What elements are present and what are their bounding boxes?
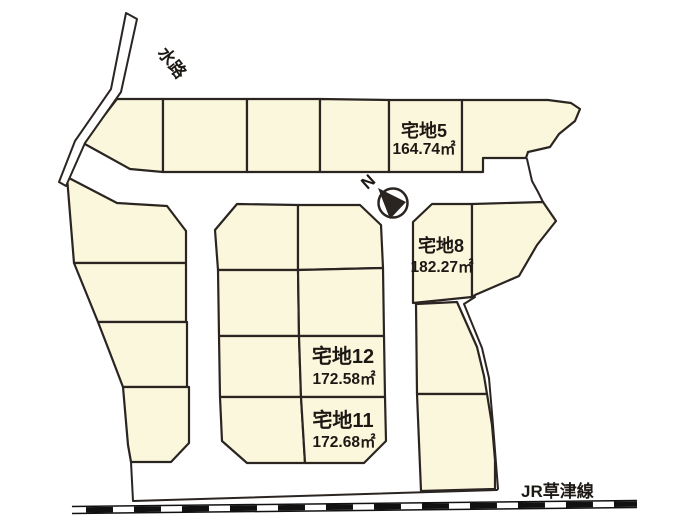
railway-label: JR草津線 [521,481,594,501]
plot-polygon [320,99,389,172]
railway-track [72,504,637,510]
plot-label-takuchi12: 宅地12 172.58㎡ [312,344,376,388]
plot-polygon [83,99,163,172]
plot-polygon [417,394,495,491]
plot-polygon [472,202,556,297]
plot-name: 宅地5 [401,120,447,141]
plot-polygon [98,322,187,387]
plot-name: 宅地11 [312,408,373,432]
plot-polygon [298,268,384,336]
plot-polygon [298,205,383,270]
plot-area: 164.74㎡ [393,139,456,158]
plot-name: 宅地8 [418,235,464,256]
waterway-label: 水路 [154,43,191,83]
plot-name: 宅地12 [312,344,374,368]
road-edge-top-right [527,159,543,202]
plot-polygon [218,270,299,336]
plot-area: 172.58㎡ [313,369,376,388]
plot-polygon [220,397,305,463]
plot-polygon [74,263,186,322]
plot-area: 172.68㎡ [313,432,376,451]
plot-area: 182.27㎡ [411,257,474,276]
plot-label-takuchi11: 宅地11 172.68㎡ [312,408,376,451]
plot-label-takuchi5: 宅地5 164.74㎡ [393,120,456,158]
plot-polygon [123,387,189,462]
plot-polygon [247,99,320,172]
plot-polygon [67,177,186,263]
site-plan-svg: N 水路 宅地5 164.74㎡ 宅地8 182.27㎡ 宅地12 172.58… [0,0,700,525]
plot-polygon [163,99,247,172]
north-label: N [357,171,379,193]
plot-polygon [219,336,301,397]
plot-polygon [215,204,298,270]
plot-polygon [462,100,580,172]
plot-polygon [416,302,487,394]
site-plan-map: N 水路 宅地5 164.74㎡ 宅地8 182.27㎡ 宅地12 172.58… [0,0,700,525]
